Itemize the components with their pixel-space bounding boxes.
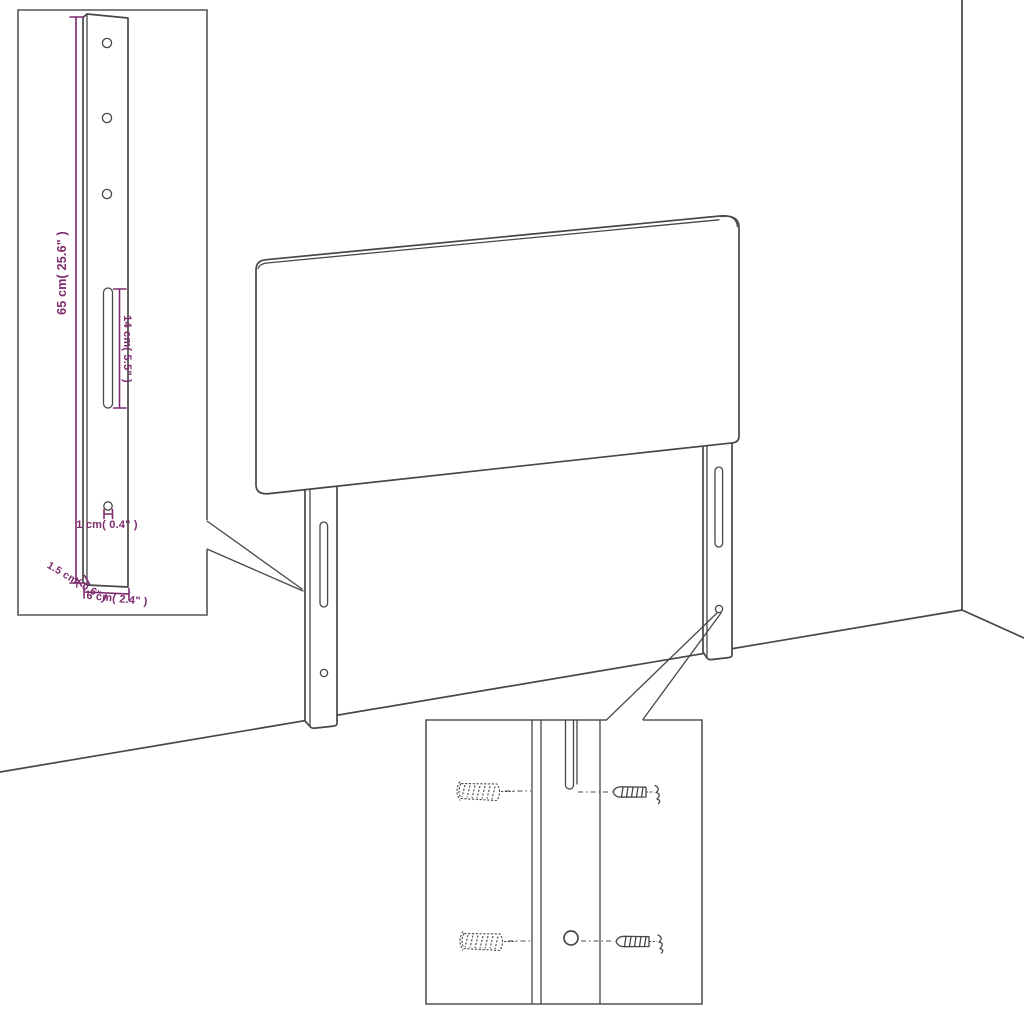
detail-leg-bottom-hole bbox=[104, 502, 112, 510]
dim-label-slot-length: 14 cm( 5.5" ) bbox=[121, 315, 133, 383]
diagram-canvas: 65 cm( 25.6" ) 14 cm( 5.5" ) 1 cm( 0.4" … bbox=[0, 0, 1024, 1024]
dim-label-leg-height: 65 cm( 25.6" ) bbox=[55, 231, 69, 315]
diagram-artwork bbox=[0, 0, 1024, 1024]
detail-leg-hole bbox=[102, 189, 111, 198]
mount-leg-hole bbox=[564, 931, 578, 945]
headboard-panel bbox=[256, 216, 739, 494]
right-leg bbox=[703, 430, 732, 660]
callout-line bbox=[643, 613, 721, 719]
mount-detail-inset-box bbox=[426, 720, 702, 1004]
right-leg-hole bbox=[715, 605, 722, 612]
right-leg-slot bbox=[715, 467, 723, 547]
detail-leg-slot bbox=[104, 288, 113, 408]
detail-leg-hole bbox=[102, 113, 111, 122]
left-leg bbox=[305, 470, 337, 728]
dim-label-hole-offset: 1 cm( 0.4" ) bbox=[76, 519, 137, 531]
left-leg-slot bbox=[320, 522, 328, 607]
left-leg-hole bbox=[320, 669, 327, 676]
detail-leg-hole bbox=[102, 38, 111, 47]
floor-line-right bbox=[962, 610, 1024, 638]
detail-leg bbox=[83, 14, 128, 587]
mount-detail-inset bbox=[426, 720, 702, 1004]
